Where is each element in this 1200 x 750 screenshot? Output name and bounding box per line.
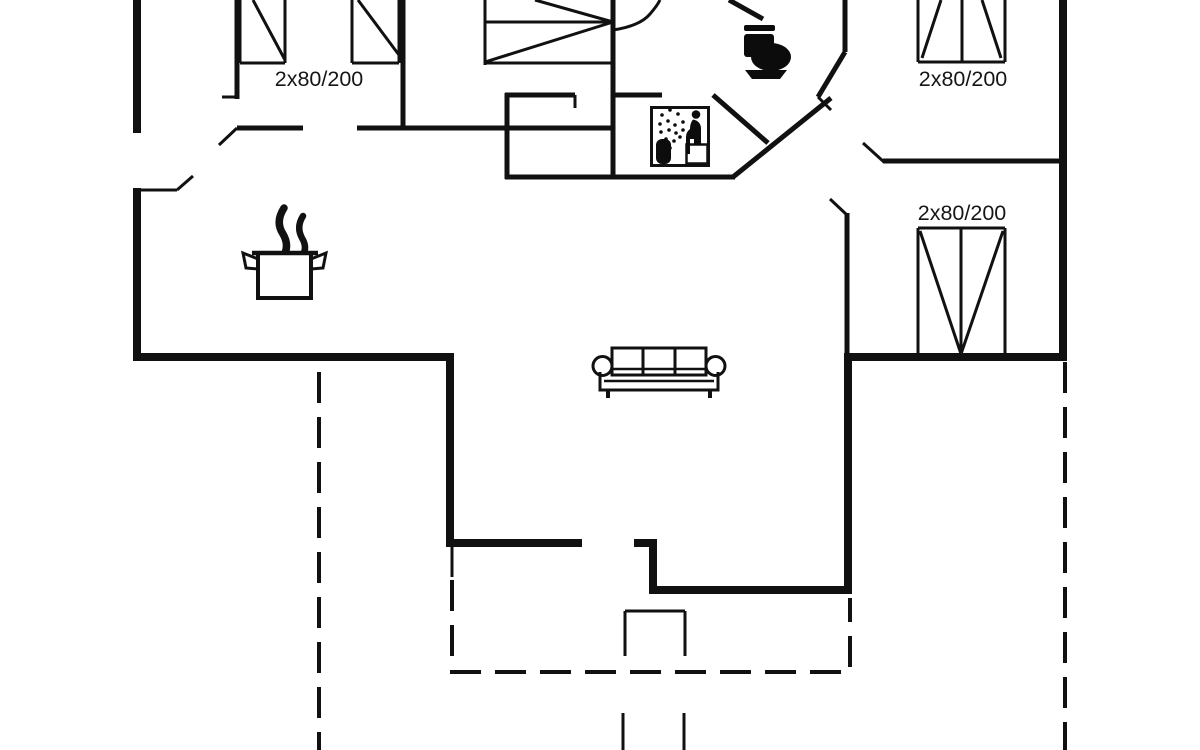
- floor-plan-canvas: 2x80/200 2x80/200 2x80/200: [0, 0, 1200, 750]
- bed-size-label: 2x80/200: [275, 67, 364, 91]
- shower-sauna-icon: [652, 108, 709, 166]
- cooking-pot-icon: [243, 208, 326, 298]
- terrace-dashed-outline: [319, 362, 1065, 750]
- bed-size-label: 2x80/200: [918, 201, 1007, 225]
- steam-icon: [279, 208, 286, 257]
- staircase-rail-curve: [613, 0, 660, 30]
- door-marks-and-steps: [137, 95, 884, 750]
- sofa-icon: [593, 348, 725, 398]
- steam-icon: [299, 216, 305, 256]
- interior-walls: [237, 0, 1063, 357]
- bed-size-label: 2x80/200: [919, 67, 1008, 91]
- staircase-icon: [485, 0, 615, 65]
- floor-plan: 2x80/200 2x80/200 2x80/200: [0, 0, 1200, 750]
- toilet-icon: [744, 25, 791, 79]
